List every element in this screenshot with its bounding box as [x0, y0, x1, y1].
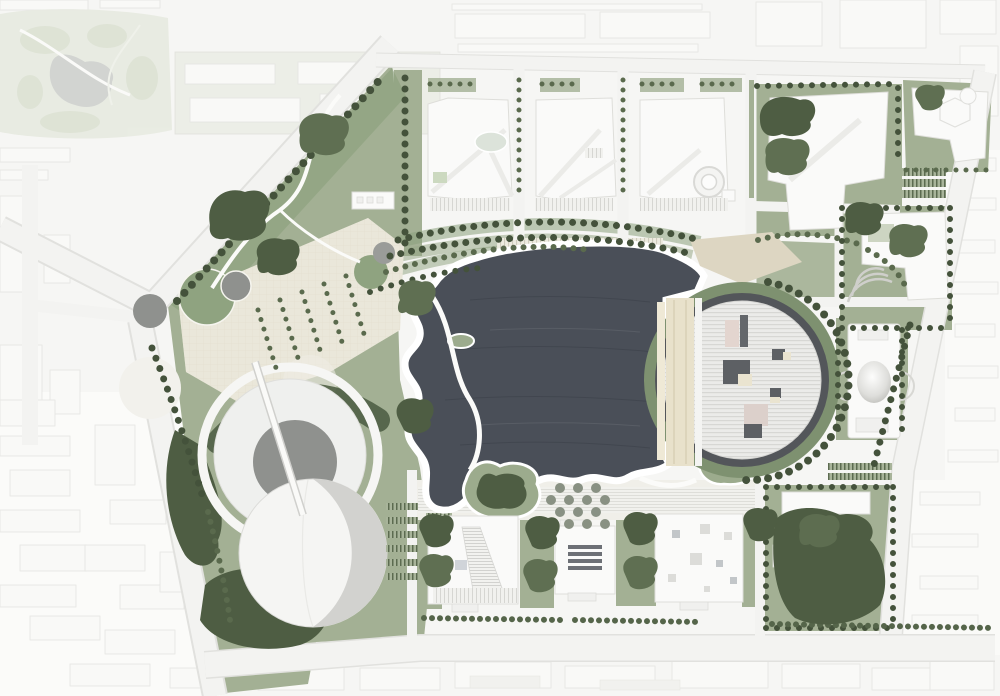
oval-pond — [475, 132, 507, 152]
block-center — [535, 98, 616, 211]
block-west — [428, 98, 512, 211]
block-east — [640, 98, 735, 211]
plaza-gray-circle — [133, 294, 167, 328]
existing-park — [0, 9, 172, 138]
gallery-east — [655, 514, 743, 610]
parking-ne — [902, 168, 946, 198]
site-plan-image: Lakeside cultural district — architectur… — [0, 0, 1000, 696]
dome — [857, 361, 891, 403]
gallery-center — [555, 520, 615, 601]
pavilion-small — [352, 192, 394, 209]
master-plan-svg: Lakeside cultural district — architectur… — [0, 0, 1000, 696]
lakeside-terrace — [657, 298, 702, 466]
